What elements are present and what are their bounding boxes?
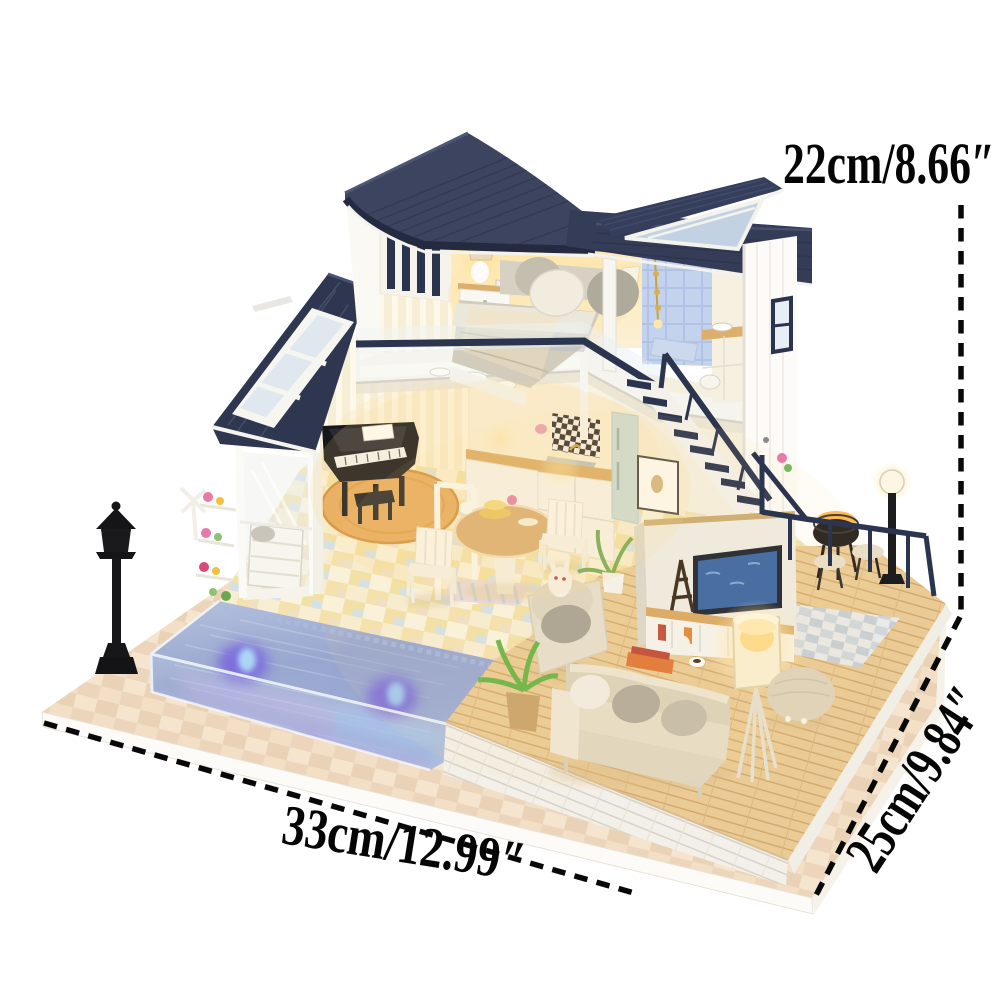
svg-text:22cm/8.66″: 22cm/8.66″ <box>783 131 995 196</box>
